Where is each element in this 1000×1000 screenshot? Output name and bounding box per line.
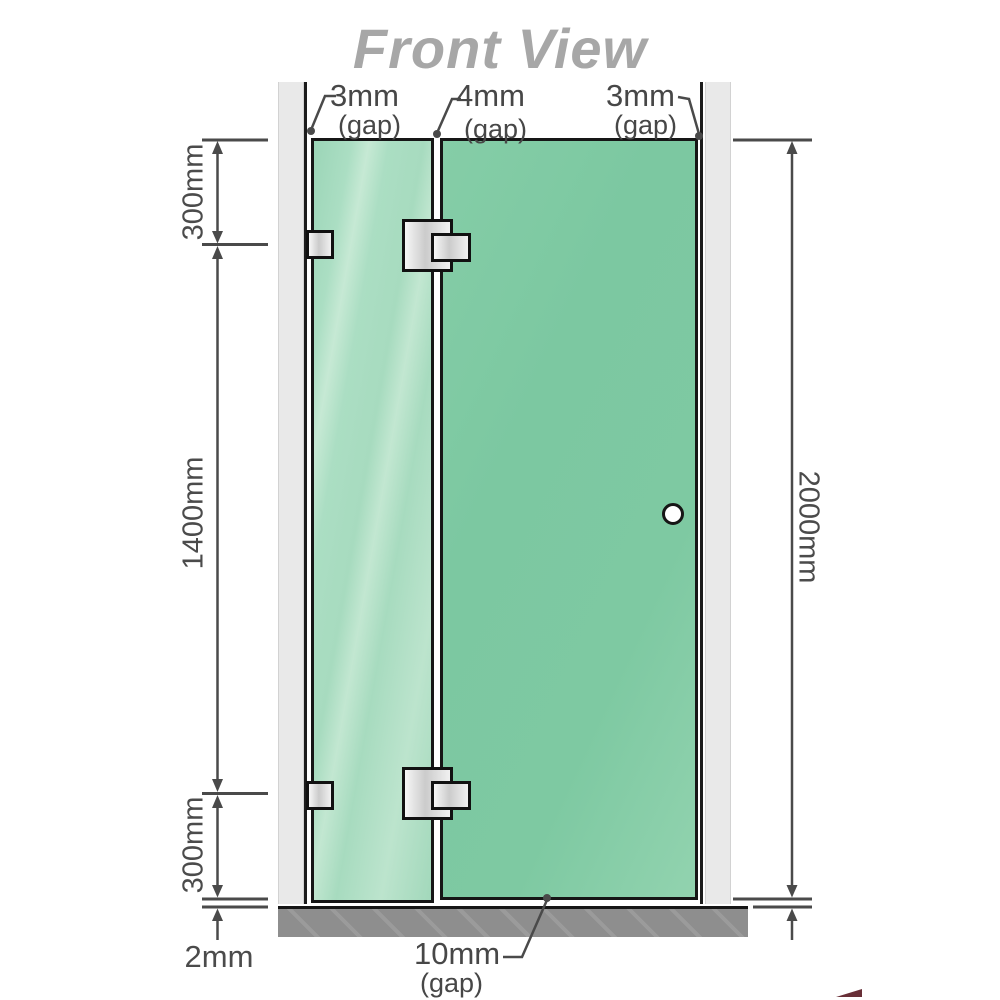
corner-artifact-mark [836, 989, 862, 997]
door-hinge-bottom-clamp [431, 781, 471, 810]
wall-bracket-top [306, 230, 334, 259]
gap-label-top-middle: 4mm (gap) [456, 80, 527, 143]
gap-value: 3mm [330, 78, 399, 113]
dim-label-left-top: 300mm [178, 144, 211, 241]
gap-label-top-right: 3mm (gap) [606, 80, 677, 139]
gap-label-top-left: 3mm (gap) [330, 80, 401, 139]
front-view-diagram: Front View [0, 0, 1000, 1000]
dim-label-floor-clearance: 2mm [185, 939, 254, 975]
door-handle-knob [662, 503, 684, 525]
gap-unit: (gap) [606, 112, 677, 139]
gap-label-bottom: 10mm (gap) [414, 938, 500, 997]
dim-label-left-middle: 1400mm [178, 457, 211, 570]
gap-value: 3mm [606, 78, 675, 113]
floor-base [278, 906, 748, 937]
gap-unit: (gap) [456, 116, 527, 143]
gap-unit: (gap) [330, 112, 401, 139]
wall-bracket-bottom [306, 781, 334, 810]
right-wall [705, 82, 731, 904]
gap-unit: (gap) [414, 970, 500, 997]
gap-value: 10mm [414, 936, 500, 971]
gap-value: 4mm [456, 78, 525, 113]
glass-door-panel [440, 138, 698, 900]
door-hinge-top-clamp [431, 233, 471, 262]
dim-label-right-total: 2000mm [792, 471, 825, 584]
right-wall-face-line [700, 82, 703, 904]
diagram-title: Front View [0, 16, 1000, 81]
left-wall [278, 82, 304, 904]
dim-label-left-bottom: 300mm [178, 797, 211, 894]
